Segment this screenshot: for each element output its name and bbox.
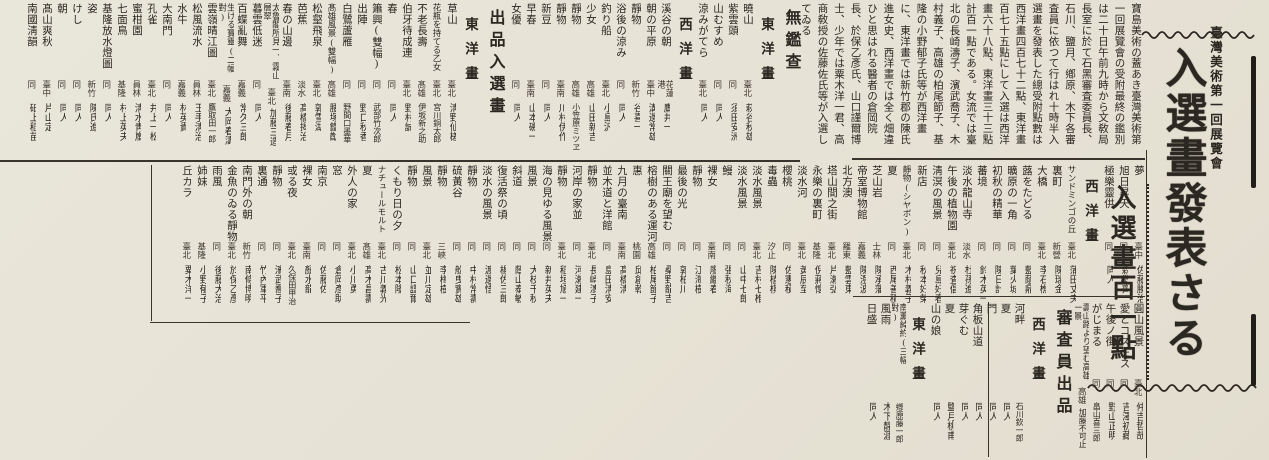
- wavy-rule-top: [1141, 28, 1259, 40]
- entry: 風景臺北並川定雄: [419, 165, 434, 320]
- entry-artist: 佐藤佐: [317, 265, 327, 320]
- entry: 日盛同人: [864, 303, 878, 457]
- entry-place: 臺南: [707, 242, 716, 265]
- entry-artist: 林英貴: [177, 103, 187, 158]
- entry-place: 新營: [1052, 242, 1061, 265]
- entry-artist: 武部竹次郎: [372, 103, 380, 158]
- entry-title: 淸溟の風景: [931, 165, 942, 220]
- entry-artist: 張秋海: [722, 265, 732, 320]
- entry: 芭蕉淡水髙橋揭治: [294, 3, 309, 158]
- entry-title: 河岸の家並: [571, 165, 582, 220]
- entry: 孔雀臺北井上一松: [144, 3, 159, 158]
- newspaper-page: 臺灣美術第一回展覽會 入選畫發表さる 入選畫百一點 寶島美術の蓋あき臺灣美術第一…: [0, 0, 1269, 460]
- entry-title: 山むすめ: [712, 3, 723, 47]
- entry: 淡水風景臺北吉村七椎: [749, 165, 764, 320]
- entry-title: 草山: [446, 3, 457, 25]
- entry: 女優同同人: [508, 3, 523, 158]
- entry-title: 花瓶を持てる乙女: [432, 3, 441, 71]
- entry-title: 蕃境: [976, 165, 987, 187]
- entry-place: 臺北: [227, 242, 236, 265]
- entry-place: 嘉義: [222, 85, 231, 106]
- entry-title: 太魯閣所見一、霧山層翠: [264, 3, 279, 88]
- divider-bottom-band: [853, 296, 1145, 297]
- edge-bracket-top: [1251, 56, 1256, 188]
- entry-artist: 柏尾節子: [647, 265, 657, 320]
- entry-artist: 後藤春月: [282, 103, 292, 158]
- entry-artist: 邱創乾: [632, 265, 642, 320]
- divider-middle-band: [150, 322, 470, 323]
- entry-artist: 伊坂新之助: [417, 103, 425, 158]
- entry-place: 同: [677, 242, 686, 265]
- entry: 風景同大枝千秋: [524, 165, 539, 320]
- entry-title: 北方澳: [841, 165, 852, 198]
- entry-artist: 小野郁子: [197, 265, 207, 320]
- entry-artist: 同人: [541, 103, 551, 158]
- entry-title: 溪谷の朝: [660, 3, 671, 47]
- entry: 最後の光同郭柏川: [674, 165, 689, 320]
- entry-title: 風景: [526, 165, 537, 187]
- section-header: 無鑑查: [777, 3, 804, 158]
- entry-place: 同: [1007, 242, 1016, 265]
- entry-title: 朝: [56, 3, 67, 14]
- entry-place: 臺北: [797, 242, 806, 265]
- category-header: 東洋畫: [755, 3, 777, 158]
- entry: 不老長壽髙雄伊坂新之助: [414, 3, 429, 158]
- entry-artist: 吉村七椎: [752, 265, 762, 320]
- entry-title: 髙雄風景(雙幅): [327, 3, 336, 74]
- entry-title: 靜物: [466, 165, 477, 187]
- entry: 生ける寶靈(二幅對)嘉義大岡春濤: [219, 3, 234, 158]
- entry-place: 新竹: [87, 80, 96, 103]
- entry-title: 硫黃谷: [451, 165, 462, 198]
- entry-artist: 片瀨弘: [827, 265, 837, 320]
- entry: 山むすめ同同人: [710, 3, 725, 158]
- entry: 鰻同張秋海: [719, 165, 734, 320]
- entry: 圓山風景臺北仲吉哲哉: [1131, 303, 1145, 457]
- entry-artist: 久保田甲治: [287, 265, 295, 320]
- entry-artist: 野村誠: [402, 103, 412, 158]
- entry-title: 暮雲低迷: [251, 3, 262, 47]
- entry-place: 同: [542, 242, 551, 265]
- entry-place: 同: [527, 242, 536, 265]
- entry-place: 三峽: [437, 242, 446, 265]
- entry-place: 桃園: [632, 242, 641, 265]
- entry: 髙山爽秋臺中片山定: [39, 3, 54, 158]
- entry-artist: 粟木洋一: [182, 265, 192, 320]
- entry-title: 芽ぐむ: [957, 303, 968, 336]
- entry-title: 出陣: [356, 3, 367, 25]
- entry: 髙雄風景(雙幅)高雄腰塚鐵猷: [324, 3, 339, 158]
- entry: 永樂の裏町基隆倪蔣懷: [809, 165, 824, 320]
- entry-title: 永樂の裏町: [811, 165, 822, 220]
- entry-title: がじまる: [1090, 303, 1101, 347]
- entry: 簫興(雙幅)同武部竹次郎: [369, 3, 384, 158]
- entry-place: 新竹: [631, 80, 640, 103]
- entry: 草山臺北淸野仙槎: [444, 3, 459, 158]
- entry-artist: 稻垣馗一: [557, 265, 567, 320]
- entry-title: 或る夜: [286, 165, 297, 198]
- entry-title: 女優: [510, 3, 521, 25]
- entry-place: 同: [102, 80, 111, 103]
- entry: 惠桃園邱創乾: [629, 165, 644, 320]
- entry-artist: 加藤不可止: [1078, 408, 1086, 457]
- entry-title: 極樂靈供: [1103, 165, 1114, 209]
- entry-title: 釣り船: [600, 3, 611, 36]
- entry-artist: 山本磯一: [526, 103, 536, 158]
- entry-artist: 小笠原ミツヱ: [571, 103, 579, 158]
- entry-place: 同: [616, 80, 625, 103]
- entry-title: 河畔: [1013, 303, 1024, 325]
- entry-artist: 同人: [616, 103, 626, 158]
- entry: 大南門同同人: [159, 3, 174, 158]
- entry: 靜物高雄小笠原ミツヱ: [568, 3, 583, 158]
- entry-place: 高雄: [327, 80, 336, 103]
- entry-place: 同: [332, 242, 341, 265]
- entry-place: 基隆: [812, 242, 821, 265]
- entry-place: 臺北: [402, 80, 411, 103]
- entry: 金魚のゐる靜物臺北於保乙彥: [224, 165, 239, 320]
- entry: 夏髙雄髙木昌壽: [359, 165, 374, 320]
- entry: 松壑飛泉臺北郭雪湖: [309, 3, 324, 158]
- entry-artist: 小川勇: [347, 265, 357, 320]
- entry-title: 日盛: [865, 303, 876, 325]
- entry-place: 同: [572, 242, 581, 265]
- entry-title: 南國淸韻: [26, 3, 37, 47]
- entry-place: 同: [737, 242, 746, 265]
- entry-title: 裸女: [706, 165, 717, 187]
- entry-place: 同: [272, 242, 281, 265]
- entry-place: 新竹: [242, 242, 251, 265]
- entry-artist: 畠山喜三郎: [1092, 402, 1100, 457]
- entry-title: 伯牙待成連: [401, 3, 412, 58]
- entry-place: 臺北: [1134, 379, 1143, 402]
- entry: 春の山邊臺南後藤春月: [279, 3, 294, 158]
- entry-place: 高雄: [1078, 387, 1087, 408]
- header-label: 審査員出品: [1050, 303, 1074, 419]
- divider-top-band: [0, 160, 800, 162]
- entry: 白鷺蘆雁同野間口墨華: [339, 3, 354, 158]
- entry-artist: 鷹取田一郎: [207, 103, 215, 158]
- entry-place: 同: [541, 80, 550, 103]
- entry-artist: 同人: [57, 103, 67, 158]
- entry-title: 朝の平原: [645, 3, 656, 47]
- entry: 河畔石川欽一郎: [1012, 303, 1026, 457]
- entry-title: 帝室博物館: [856, 165, 867, 220]
- entry-artist: 於保乙彥: [227, 265, 237, 320]
- entry-artist: 玉手淸治: [192, 103, 202, 158]
- entry: 門同人: [984, 303, 998, 457]
- category-header: 西洋畫: [1026, 303, 1048, 457]
- entry-place: 嘉義: [237, 80, 246, 103]
- entry-place: 同: [482, 242, 491, 265]
- entry-place: 嘉義: [177, 80, 186, 103]
- entry: 溪谷の朝花蓮港鷹井一: [658, 3, 673, 158]
- entry-place: 同: [372, 80, 381, 103]
- entry-place: 同: [782, 242, 791, 265]
- entry-artist: 大枝千秋: [527, 265, 537, 320]
- entry-title: 並木道と洋館: [601, 165, 612, 231]
- entry-title: 淡水の風景: [481, 165, 492, 220]
- entry-artist: 同人: [102, 103, 112, 158]
- entry-title: 靜物: [691, 165, 702, 187]
- header-label: 西洋畫: [1027, 303, 1047, 391]
- entry-place: 同: [917, 242, 926, 265]
- entry: 南京同佐藤佐: [314, 165, 329, 320]
- entry-place: 同: [162, 80, 171, 103]
- entry-title: 關王廟を望む: [661, 165, 672, 231]
- entry-title: 曉山: [742, 3, 753, 25]
- entry: 浴後の涼み同同人: [613, 3, 628, 158]
- entry-title: 塔山間之街: [826, 165, 837, 220]
- entry-place: 臺北: [377, 242, 386, 265]
- entry: 角板山道同人: [970, 303, 984, 457]
- entry-artist: 山口謹爾: [407, 265, 417, 320]
- entry: 外人の家臺北小川勇: [344, 165, 359, 320]
- entry: 裸女臺南廖繼春: [704, 165, 719, 320]
- entry-title: 早春: [525, 3, 536, 25]
- entry: 關王廟を望む同桑野龍吉: [659, 165, 674, 320]
- entry-place: 員林: [192, 80, 201, 103]
- entry-place: 臺北: [827, 242, 836, 265]
- entry-place: 同: [1104, 242, 1113, 265]
- entry-place: 臺中: [42, 80, 51, 103]
- entry: 涼みがてら臺北同人: [695, 3, 710, 158]
- entry-artist: 古川義光: [377, 265, 387, 320]
- entry-title: 七面鳥: [116, 3, 127, 36]
- entry-title: 曠原の一角: [1006, 165, 1017, 220]
- entry-place: 同: [728, 80, 737, 103]
- entry: 太魯閣所見一、霧山層翠臺北加藤三造: [264, 3, 279, 158]
- entry-title: 丘カラ: [181, 165, 192, 198]
- entry-artist: 倪蔣懷: [812, 265, 822, 320]
- entry-artist: 片山定: [42, 103, 52, 158]
- entry-artist: 濱武喬子: [272, 265, 282, 320]
- entry-place: 臺南: [556, 80, 565, 103]
- entry-artist: 同人: [252, 103, 262, 158]
- entry-title: 不老長壽: [416, 3, 427, 47]
- entry-place: 同: [602, 242, 611, 265]
- entry-place: 臺北: [698, 80, 707, 103]
- entry-artist: 同人: [958, 402, 968, 457]
- entry-title: 外人の家: [346, 165, 357, 209]
- entry: 九月の臺南臺南髙橋淸: [614, 165, 629, 320]
- entry-title: 角板山道: [971, 303, 982, 347]
- entry: けし同同人: [69, 3, 84, 158]
- entry: 出陣同野口秋香: [354, 3, 369, 158]
- entry-title: 靜物(シヤボン): [902, 165, 911, 236]
- entry-place: 臺北: [422, 242, 431, 265]
- entry-title: 靜物: [271, 165, 282, 187]
- entry-title: 南京: [316, 165, 327, 187]
- entry-title: 姉妹: [196, 165, 207, 187]
- entry-title: 初秋の精華: [991, 165, 1002, 220]
- entry-place: 同: [57, 80, 66, 103]
- entry-title: 鰻: [721, 165, 732, 176]
- edge-bracket-bottom: [1251, 314, 1256, 386]
- entry: 南門外の朝新竹南條博明: [239, 165, 254, 320]
- entry: 百蝶亂舞嘉義常久三郎: [234, 3, 249, 158]
- entry: 海の見ゆる風景同新井英夫: [539, 165, 554, 320]
- entry-artist: 桑野龍吉: [662, 265, 672, 320]
- rule-title-left: [1146, 150, 1147, 458]
- entry-title: 風雨: [879, 303, 890, 325]
- entry-title: 榕樹のある運河: [646, 165, 657, 242]
- entry-artist: 同人: [930, 402, 940, 457]
- list-band-bottom: 圓山風景臺北仲吉哲哉愛とコスモス同吉澤初藏午後ノ街同野山正明がじまる同畠山喜三郎…: [853, 303, 1145, 457]
- entry-artist: 同人: [698, 103, 708, 158]
- entry-place: 同: [387, 80, 396, 103]
- entry: 塔山間之街臺北片瀨弘: [824, 165, 839, 320]
- entry: 曉山臺北萩谷秋雄: [740, 3, 755, 158]
- entry-title: サンドミンゴの丘: [1067, 165, 1076, 233]
- entry-artist: 松本隆: [392, 265, 402, 320]
- entry-title: 水牛: [176, 3, 187, 25]
- entry: 淡水の風景同渡邊悟: [479, 165, 494, 320]
- entry-artist: 常久三郎: [237, 103, 247, 158]
- entry-place: 同: [511, 80, 520, 103]
- entry: 朝の平原臺中溝邊常雄: [643, 3, 658, 158]
- entry-place: 同: [357, 80, 366, 103]
- entry-title: 松風流水: [191, 3, 202, 47]
- entry: 七面鳥基隆村上英夫: [114, 3, 129, 158]
- entry-artist: 南條博明: [242, 265, 252, 320]
- entry: 櫻桃同佐憲積: [779, 165, 794, 320]
- entry-title: 南薰綽約(三幅對): [892, 303, 906, 381]
- entry-title: 靜物: [556, 165, 567, 187]
- entry: 窓同倉岡彥助: [329, 165, 344, 320]
- entry-artist: 島田淸安: [602, 265, 612, 320]
- entry: 暮雲低迷同同人: [249, 3, 264, 158]
- entry-place: 臺北: [752, 242, 761, 265]
- entry-place: 同: [662, 242, 671, 265]
- entry-title: 大橋: [1036, 165, 1047, 187]
- entry-title: けし: [71, 3, 82, 25]
- entry-artist: 野山正明: [1105, 402, 1115, 457]
- entry-artist: 同人: [162, 103, 172, 158]
- entry-artist: 郭柏川: [677, 265, 687, 320]
- entry-place: 臺中: [646, 80, 655, 103]
- entry-place: 臺北: [147, 80, 156, 103]
- entry-title: 九月の臺南: [616, 165, 627, 220]
- entry-title: 靜物: [570, 3, 581, 25]
- entry: 靜物三峽李梅樹: [434, 165, 449, 320]
- entry-place: 同: [72, 80, 81, 103]
- entry-place: 同: [1092, 379, 1101, 402]
- header-label: 東洋畫: [460, 3, 480, 91]
- entry: 芽ぐむ同人: [956, 303, 970, 457]
- entry-artist: 吉澤初藏: [1119, 402, 1129, 457]
- entry-title: 百蝶亂舞: [236, 3, 247, 47]
- entry-artist: 淸水靑嵐: [132, 103, 142, 158]
- entry: 春同同人: [384, 3, 399, 158]
- entry-title: 壽山路より望む高雄一景: [1075, 303, 1089, 387]
- entry-title: 春: [386, 3, 397, 14]
- entry-place: 同: [342, 80, 351, 103]
- entry: 毒蟲汐止陳植棋: [764, 165, 779, 320]
- entry-title: 夏: [999, 303, 1010, 314]
- entry-title: 最後の光: [676, 165, 687, 209]
- entry-place: 臺南: [617, 242, 626, 265]
- entry: 蜜柑園員林淸水靑嵐: [129, 3, 144, 158]
- entry-place: 臺中: [1134, 242, 1143, 265]
- entry: 風雨木下靜涯: [878, 303, 892, 457]
- category-header: 東洋畫: [459, 3, 481, 158]
- entry-place: 同: [992, 242, 1001, 265]
- category-header: 西洋畫: [673, 3, 695, 158]
- entry-title: 新店: [916, 165, 927, 187]
- entry-place: 同: [722, 242, 731, 265]
- entry: 復活祭の頃同楊佐三郎: [494, 165, 509, 320]
- entry-artist: 黃辰至: [797, 265, 807, 320]
- entry-artist: 山田新吉: [586, 103, 596, 158]
- entry-place: 臺北: [601, 80, 610, 103]
- entry-artist: 楊佐三郎: [497, 265, 507, 320]
- entry-title: 生ける寶靈(二幅對): [219, 3, 234, 85]
- entry-artist: 顏水龍: [302, 265, 312, 320]
- entry-place: 基隆: [197, 242, 206, 265]
- entry-place: 臺北: [947, 242, 956, 265]
- entry: 靜物臺北稻垣馗一: [554, 165, 569, 320]
- entry: 靜物臺南川村伊作: [553, 3, 568, 158]
- entry-title: 靜物: [586, 165, 597, 187]
- entry: 少女高雄山田新吉: [583, 3, 598, 158]
- lead-paragraph: 寶島美術の蓋あき臺灣美術第一回展覽會の受附最終の鑑別は二十日午前九時から文敎局長…: [791, 3, 1143, 155]
- entry-title: 裏町: [1051, 165, 1062, 187]
- entry-artist: 長崎濤子: [587, 265, 597, 320]
- entry: 榕樹のある運河高雄柏尾節子: [644, 165, 659, 320]
- entry: 松風流水員林玉手淸治: [189, 3, 204, 158]
- entry: 裸女臺南顏水龍: [299, 165, 314, 320]
- entry-place: 高雄: [571, 80, 580, 103]
- entry-place: 淡水: [297, 80, 306, 103]
- entry-artist: 後藤大治: [212, 265, 222, 320]
- entry-title: 南門外の朝: [241, 165, 252, 220]
- header-label: 無鑑查: [779, 3, 803, 75]
- entry-place: 高雄: [586, 80, 595, 103]
- entry-artist: 渡邊悟: [482, 265, 492, 320]
- entry-artist: 江海樹: [692, 265, 702, 320]
- entry-title: 雲嶺晴江圖: [206, 3, 217, 58]
- entry-place: 臺北: [347, 242, 356, 265]
- entry: 裏通同竹內軍平: [254, 165, 269, 320]
- entry-artist: 石川欽一郎: [1015, 402, 1023, 457]
- entry-place: 同: [452, 242, 461, 265]
- entry-place: 同: [1106, 379, 1115, 402]
- entry-place: 同: [467, 242, 476, 265]
- entry-title: 松壑飛泉: [311, 3, 322, 47]
- entry-title: 淡水河: [796, 165, 807, 198]
- entry-title: 裏通: [256, 165, 267, 187]
- entry-title: 靜物: [555, 3, 566, 25]
- entry-place: 同: [512, 242, 521, 265]
- entry-place: 臺南: [526, 80, 535, 103]
- entry-place: 臺北: [587, 242, 596, 265]
- entry-artist: 同人: [713, 103, 723, 158]
- entry-title: 夏: [886, 165, 897, 176]
- entry-artist: 谷喜一: [631, 103, 641, 158]
- header-label: 出品入選畫: [483, 3, 507, 119]
- entry-title: 芝山岩: [871, 165, 882, 198]
- entry-artist: 中村常壽: [467, 265, 477, 320]
- entry-title: 基隆放水燈圖: [101, 3, 112, 69]
- entry-title: 風景: [421, 165, 432, 187]
- header-label: 西洋畫: [674, 3, 694, 91]
- entry-artist: 小島汎: [601, 103, 611, 158]
- entry-place: 高雄: [647, 242, 656, 265]
- entry-title: 新豆: [540, 3, 551, 25]
- entry-place: 同: [1120, 379, 1129, 402]
- rule-bottom-block: [988, 302, 989, 457]
